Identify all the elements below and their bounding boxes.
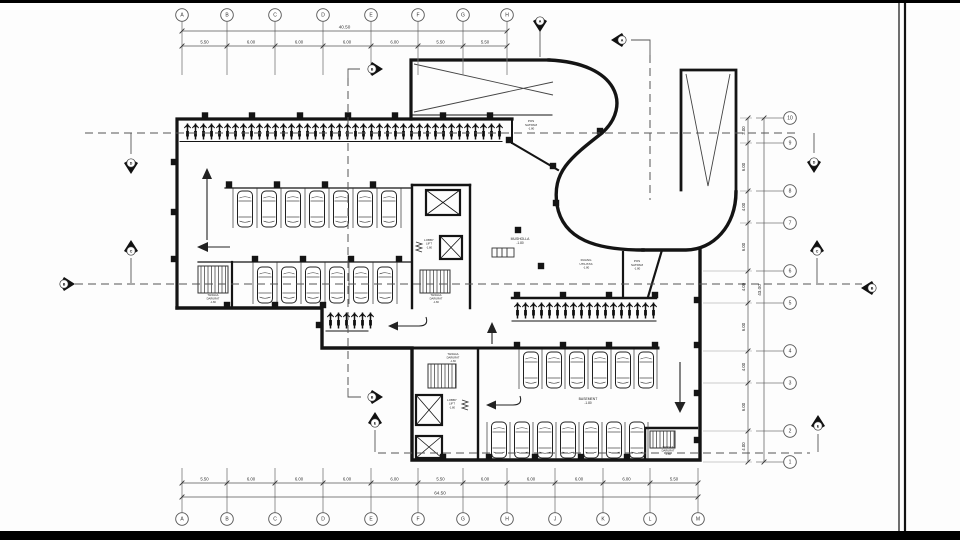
- svg-text:D: D: [321, 13, 325, 19]
- column: [171, 256, 177, 262]
- svg-text:6: 6: [789, 269, 792, 275]
- bike-symbol: [488, 124, 494, 140]
- svg-text:10: 10: [787, 116, 793, 122]
- svg-text:D: D: [813, 160, 816, 164]
- grid-bubble: 8: [784, 185, 797, 198]
- bike-symbol: [304, 124, 310, 140]
- dim-label: 6.00: [741, 242, 746, 251]
- bike-symbol: [554, 303, 560, 319]
- car-symbol: [286, 191, 301, 227]
- dim-label: 4.00: [741, 442, 746, 451]
- column: [560, 292, 566, 298]
- section-marker-b: B: [368, 390, 383, 404]
- room-label-musholla: MUSHOLLA-1.80: [511, 237, 530, 245]
- bike-symbol: [480, 124, 486, 140]
- dim-label: 6.00: [295, 40, 304, 45]
- column: [514, 342, 520, 348]
- grid-bubble: 10: [784, 112, 797, 125]
- room-label-lobby-lift-2: LOBBYLIFT-1.80: [447, 398, 457, 409]
- bike-symbol: [320, 124, 326, 140]
- bike-symbol: [392, 124, 398, 140]
- elevator-core-lower-2: [416, 436, 442, 458]
- section-marker-e: E: [368, 412, 382, 427]
- dim-label: 6.00: [741, 402, 746, 411]
- column: [320, 302, 326, 308]
- bike-symbol: [327, 313, 333, 329]
- bike-symbol: [264, 124, 270, 140]
- grid-bubble: C: [269, 513, 282, 526]
- column: [506, 137, 512, 143]
- svg-text:LIFT: LIFT: [449, 402, 455, 406]
- svg-text:DARURAT: DARURAT: [430, 297, 443, 301]
- bike-symbol: [496, 124, 502, 140]
- section-marker-c: C: [810, 240, 824, 255]
- svg-text:-1.80: -1.80: [210, 301, 216, 304]
- room-label-tangga-darurat-1: TANGGADARURAT-1.80: [207, 293, 220, 304]
- dim-label: 5.50: [436, 40, 445, 45]
- elevator-core-upper-1: [426, 190, 460, 215]
- section-lines: [75, 29, 862, 453]
- bike-symbol: [586, 303, 592, 319]
- grid-bubble: D: [317, 9, 330, 22]
- bike-symbol: [594, 303, 600, 319]
- grid-bubble: A: [176, 9, 189, 22]
- grid-bubble: 9: [784, 137, 797, 150]
- column: [652, 292, 658, 298]
- car-symbol: [382, 191, 397, 227]
- elevator-shafts: [416, 190, 462, 458]
- bike-symbol: [514, 303, 520, 319]
- section-marker-b: B: [861, 281, 876, 295]
- column: [487, 112, 493, 118]
- room-label-lobby-lift-1: LOBBYLIFT-1.80: [424, 238, 434, 249]
- column: [171, 159, 177, 165]
- car-symbol: [334, 191, 349, 227]
- grid-bubble: B: [221, 9, 234, 22]
- svg-text:-1.80: -1.80: [433, 301, 439, 304]
- musholla-rack: [492, 248, 514, 257]
- bike-symbol: [618, 303, 624, 319]
- section-marker-a: A: [533, 17, 547, 32]
- column: [370, 181, 376, 187]
- dim-label: 6.00: [343, 477, 352, 482]
- svg-text:C: C: [273, 13, 277, 19]
- svg-text:8: 8: [789, 189, 792, 195]
- dim-label: 3.00: [741, 126, 746, 135]
- svg-text:TANGGA: TANGGA: [207, 293, 218, 297]
- column: [538, 263, 544, 269]
- grid-bubble: J: [549, 513, 562, 526]
- bike-symbol: [456, 124, 462, 140]
- bike-symbol: [610, 303, 616, 319]
- svg-text:7: 7: [789, 221, 792, 227]
- svg-text:D: D: [321, 517, 325, 523]
- floor-plan-svg: ABCDEFGHABCDEFGHJKLM10987654321 5.506.00…: [0, 0, 960, 540]
- grid-bubble: 3: [784, 377, 797, 390]
- bike-symbol: [216, 124, 222, 140]
- car-symbol: [378, 267, 393, 303]
- grid-bubble: 5: [784, 297, 797, 310]
- section-marker-c: C: [124, 240, 138, 255]
- bike-symbol: [570, 303, 576, 319]
- bike-symbol: [208, 124, 214, 140]
- dim-label: 5.50: [200, 40, 209, 45]
- elevator-core-lower-1: [416, 395, 442, 425]
- stair-flight: [420, 270, 450, 293]
- dim-label: 6.00: [481, 477, 490, 482]
- column: [578, 454, 584, 460]
- bike-symbol: [312, 124, 318, 140]
- bike-symbol: [642, 303, 648, 319]
- grid-bubble: A: [176, 513, 189, 526]
- grid-bubble: H: [501, 9, 514, 22]
- grid-bubble: G: [457, 513, 470, 526]
- car-symbol: [282, 267, 297, 303]
- bike-symbol: [343, 313, 349, 329]
- bike-symbol: [351, 313, 357, 329]
- svg-text:-1.80: -1.80: [450, 360, 456, 363]
- bike-symbol: [352, 124, 358, 140]
- grid-bubble: 6: [784, 265, 797, 278]
- bike-symbol: [232, 124, 238, 140]
- bike-symbol: [335, 313, 341, 329]
- grid-bubble: E: [365, 9, 378, 22]
- car-symbol: [616, 352, 631, 388]
- grid-bubble: L: [644, 513, 657, 526]
- bike-symbol: [626, 303, 632, 319]
- bike-symbol: [650, 303, 656, 319]
- car-parking: [238, 191, 654, 458]
- bike-symbol: [296, 124, 302, 140]
- dim-label: 4.00: [741, 202, 746, 211]
- bike-symbol: [546, 303, 552, 319]
- room-label-tangga-darurat-3: TANGGADARURAT-1.80: [447, 352, 460, 363]
- car-symbol: [547, 352, 562, 388]
- grid-bubble: B: [221, 513, 234, 526]
- svg-text:-1.80: -1.80: [449, 405, 456, 409]
- svg-text:4: 4: [789, 349, 792, 355]
- grid-bubble: D: [317, 513, 330, 526]
- car-symbol: [310, 191, 325, 227]
- svg-text:F: F: [416, 13, 419, 19]
- bike-symbol: [464, 124, 470, 140]
- car-symbol: [258, 267, 273, 303]
- car-symbol: [262, 191, 277, 227]
- column: [226, 181, 232, 187]
- room-label-pos-satpam-north: POSSATPAM-1.80: [525, 119, 537, 131]
- column: [624, 454, 630, 460]
- svg-text:-1.80: -1.80: [583, 266, 590, 270]
- column: [274, 181, 280, 187]
- dim-label: 6.00: [247, 40, 256, 45]
- room-label-tangga-darurat-2: TANGGADARURAT-1.80: [430, 293, 443, 304]
- dim-label: 6.00: [390, 40, 399, 45]
- svg-text:L: L: [649, 517, 652, 523]
- car-symbol: [358, 191, 373, 227]
- grid-bubble: K: [597, 513, 610, 526]
- bike-symbol: [538, 303, 544, 319]
- bike-symbol: [416, 124, 422, 140]
- column: [224, 302, 230, 308]
- svg-text:TANGGA: TANGGA: [447, 352, 458, 356]
- svg-text:9: 9: [789, 141, 792, 147]
- dim-label: 6.00: [622, 477, 631, 482]
- car-symbol: [593, 352, 608, 388]
- bike-symbol: [367, 313, 373, 329]
- svg-text:F: F: [416, 517, 419, 523]
- car-symbol: [570, 352, 585, 388]
- bike-symbol: [602, 303, 608, 319]
- dim-label: 5.50: [481, 40, 490, 45]
- car-symbol: [306, 267, 321, 303]
- svg-text:A: A: [539, 19, 542, 23]
- column: [252, 256, 258, 262]
- grid-bubble: C: [269, 9, 282, 22]
- column: [553, 200, 559, 206]
- column: [316, 322, 322, 328]
- bike-symbol: [634, 303, 640, 319]
- column: [514, 292, 520, 298]
- dim-label: 6.00: [247, 477, 256, 482]
- column: [550, 163, 556, 169]
- column: [694, 437, 700, 443]
- dim-label: 6.00: [295, 477, 304, 482]
- section-marker-d: D: [124, 159, 138, 174]
- bike-symbol: [530, 303, 536, 319]
- svg-text:C: C: [816, 249, 819, 253]
- svg-text:LIFT: LIFT: [426, 242, 432, 246]
- column: [560, 342, 566, 348]
- grid-bubble: 1: [784, 456, 797, 469]
- svg-text:-1.80: -1.80: [426, 245, 433, 249]
- svg-text:A: A: [621, 38, 624, 42]
- svg-text:-1.80: -1.80: [516, 241, 523, 245]
- svg-text:TANGGA: TANGGA: [662, 445, 673, 449]
- room-label-tangga-darurat-4: TANGGADARURAT-1.80: [662, 445, 675, 456]
- bike-symbol: [408, 124, 414, 140]
- svg-text:M: M: [696, 517, 700, 523]
- bike-symbol: [440, 124, 446, 140]
- dim-total: 40.50: [339, 25, 351, 30]
- svg-text:C: C: [130, 249, 133, 253]
- column: [532, 454, 538, 460]
- bike-symbol: [200, 124, 206, 140]
- car-symbol: [639, 352, 654, 388]
- column: [322, 181, 328, 187]
- section-marker-d: D: [807, 158, 821, 173]
- svg-text:1: 1: [789, 460, 792, 466]
- bike-symbol: [288, 124, 294, 140]
- parking-stall-lines: [233, 188, 657, 459]
- dim-label: 6.00: [390, 477, 399, 482]
- column: [300, 256, 306, 262]
- svg-text:-1.80: -1.80: [634, 267, 641, 271]
- dim-total: 43.00: [757, 284, 762, 296]
- section-markers: AABDDCCBBBEE: [60, 17, 876, 430]
- stair-flight: [428, 364, 456, 388]
- svg-text:D: D: [130, 161, 133, 165]
- column: [694, 342, 700, 348]
- svg-text:G: G: [461, 517, 465, 523]
- bike-symbol: [578, 303, 584, 319]
- dim-label: 6.00: [575, 477, 584, 482]
- svg-text:3: 3: [789, 381, 792, 387]
- column: [440, 112, 446, 118]
- dim-label: 5.50: [200, 477, 209, 482]
- grid-bubble: 2: [784, 425, 797, 438]
- bike-symbol: [384, 124, 390, 140]
- section-marker-e: E: [811, 415, 825, 430]
- grid-bubble: 4: [784, 345, 797, 358]
- svg-text:2: 2: [789, 429, 792, 435]
- dim-label: 5.50: [670, 477, 679, 482]
- svg-text:DARURAT: DARURAT: [447, 356, 460, 360]
- bike-symbol: [400, 124, 406, 140]
- section-marker-a: A: [611, 33, 626, 47]
- bike-symbol: [336, 124, 342, 140]
- column: [348, 256, 354, 262]
- car-symbol: [524, 352, 539, 388]
- svg-text:-1.80: -1.80: [584, 401, 591, 405]
- grid-bubble: E: [365, 513, 378, 526]
- bike-symbol: [328, 124, 334, 140]
- column: [515, 227, 521, 233]
- svg-text:B: B: [371, 67, 374, 71]
- svg-text:B: B: [63, 282, 66, 286]
- svg-text:DARURAT: DARURAT: [207, 297, 220, 301]
- room-label-pos-satpam-east: POSSATPAM-1.80: [631, 259, 643, 271]
- room-label-basement: BASEMENT-1.80: [579, 397, 598, 405]
- svg-text:5: 5: [789, 301, 792, 307]
- section-marker-b: B: [368, 62, 383, 76]
- column: [272, 302, 278, 308]
- stair-flight: [198, 266, 228, 293]
- column: [392, 112, 398, 118]
- dim-label: 4.00: [741, 362, 746, 371]
- bike-symbol: [376, 124, 382, 140]
- dim-label: 4.00: [741, 282, 746, 291]
- svg-text:G: G: [461, 13, 465, 19]
- ramp-arrows: [414, 64, 730, 186]
- bike-symbol: [184, 124, 190, 140]
- column: [249, 112, 255, 118]
- column: [202, 112, 208, 118]
- grid-bubble: F: [412, 513, 425, 526]
- bike-symbol: [448, 124, 454, 140]
- bike-symbol: [280, 124, 286, 140]
- grid-bubble: M: [692, 513, 705, 526]
- column: [396, 256, 402, 262]
- bike-symbol: [240, 124, 246, 140]
- bike-symbol: [562, 303, 568, 319]
- bike-symbol: [424, 124, 430, 140]
- svg-text:B: B: [871, 286, 874, 290]
- room-label-ruang-utilitas: RUANGUTILITAS-1.80: [580, 258, 593, 270]
- structural-columns: [171, 112, 700, 460]
- svg-text:B: B: [371, 395, 374, 399]
- svg-text:-1.80: -1.80: [665, 453, 671, 456]
- grid-bubble: G: [457, 9, 470, 22]
- dim-label: 6.00: [343, 40, 352, 45]
- column: [486, 454, 492, 460]
- dim-label: 6.00: [741, 162, 746, 171]
- bike-symbol: [192, 124, 198, 140]
- svg-text:DARURAT: DARURAT: [662, 449, 675, 453]
- bike-symbol: [272, 124, 278, 140]
- elevator-core-upper-2: [440, 236, 462, 259]
- svg-text:C: C: [273, 517, 277, 523]
- door-symbols: [416, 242, 468, 410]
- drawing-sheet: ABCDEFGHABCDEFGHJKLM10987654321 5.506.00…: [0, 0, 960, 540]
- column: [440, 454, 446, 460]
- bike-symbol: [224, 124, 230, 140]
- column: [652, 342, 658, 348]
- svg-text:H: H: [505, 517, 509, 523]
- column: [694, 297, 700, 303]
- section-marker-b: B: [60, 277, 75, 291]
- bike-symbol: [360, 124, 366, 140]
- column: [297, 112, 303, 118]
- svg-text:-1.80: -1.80: [528, 127, 535, 131]
- column: [606, 292, 612, 298]
- bike-symbol: [368, 124, 374, 140]
- grid-bubble: H: [501, 513, 514, 526]
- grid-bubble: 7: [784, 217, 797, 230]
- dim-label: 5.50: [436, 477, 445, 482]
- dim-total: 64.50: [434, 491, 446, 496]
- column: [171, 209, 177, 215]
- bike-symbol: [248, 124, 254, 140]
- grid-bubble: F: [412, 9, 425, 22]
- bike-symbol: [256, 124, 262, 140]
- svg-text:H: H: [505, 13, 509, 19]
- column: [606, 342, 612, 348]
- bike-symbol: [472, 124, 478, 140]
- bike-symbol: [522, 303, 528, 319]
- car-symbol: [330, 267, 345, 303]
- bike-symbol: [359, 313, 365, 329]
- column: [694, 390, 700, 396]
- dim-label: 6.00: [741, 322, 746, 331]
- dim-label: 6.00: [527, 477, 536, 482]
- car-symbol: [238, 191, 253, 227]
- svg-text:TANGGA: TANGGA: [430, 293, 441, 297]
- bike-symbol: [432, 124, 438, 140]
- car-symbol: [354, 267, 369, 303]
